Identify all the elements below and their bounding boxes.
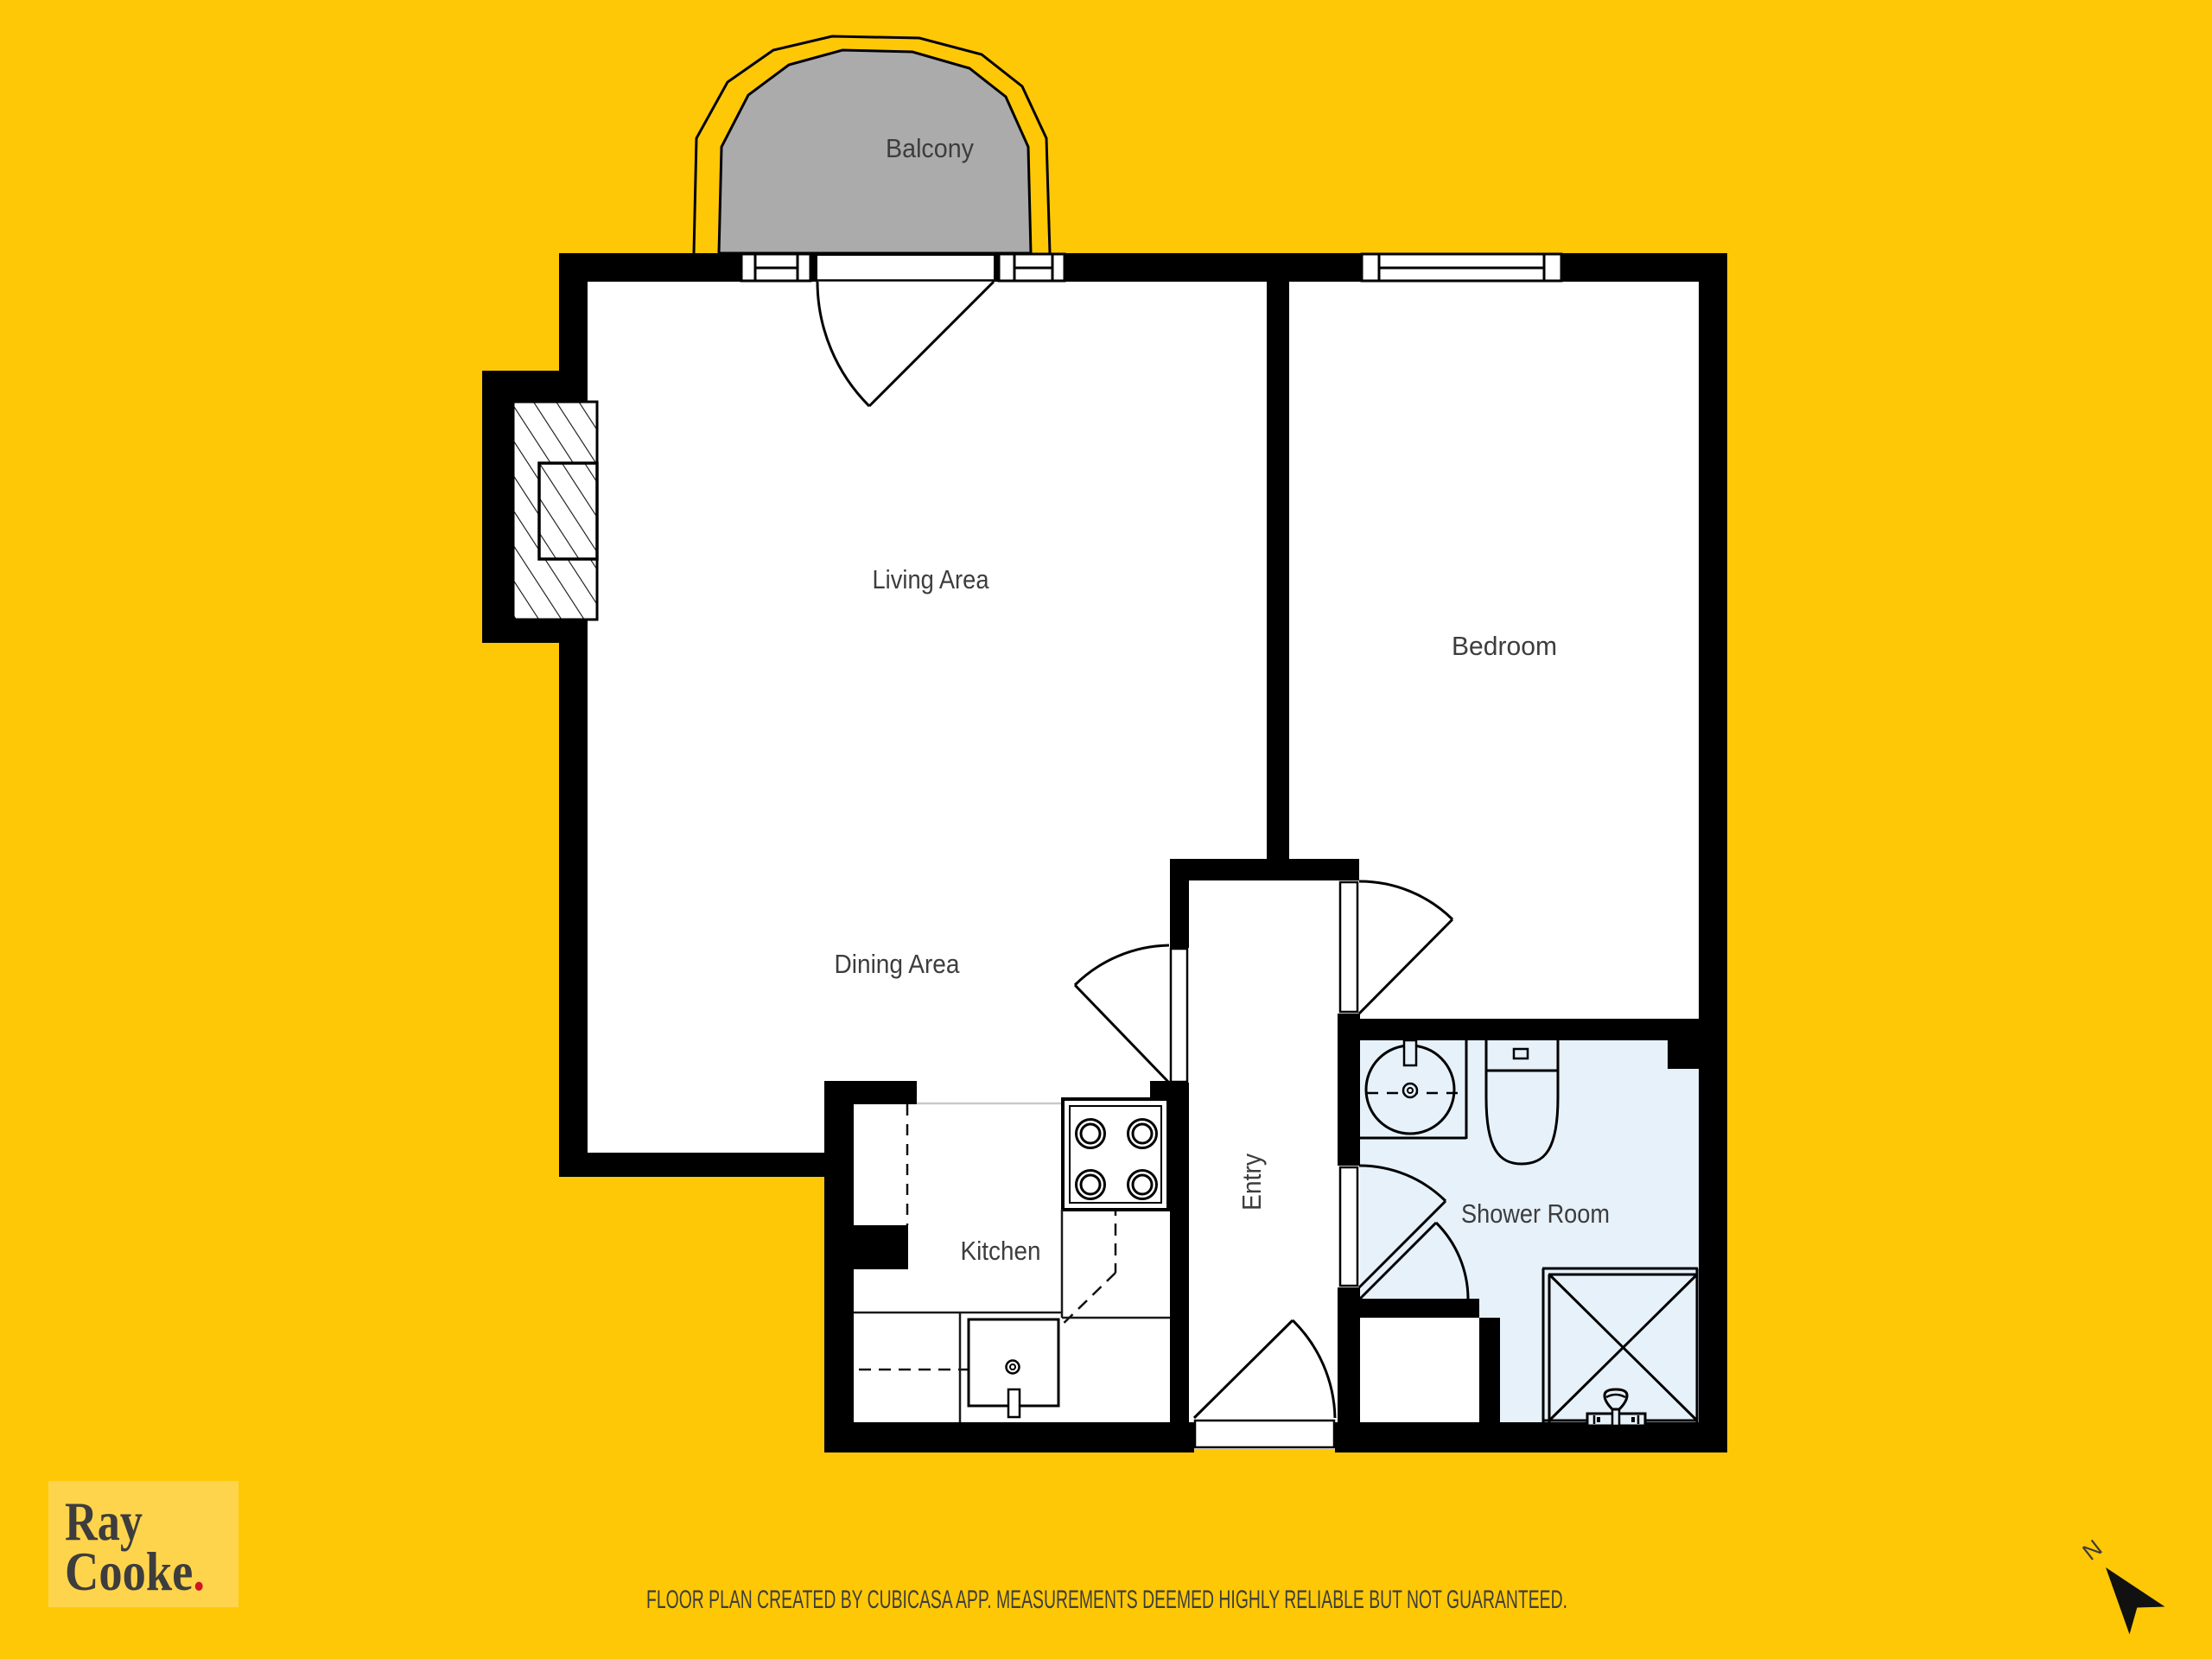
svg-text:FLOOR PLAN CREATED BY CUBICASA: FLOOR PLAN CREATED BY CUBICASA APP. MEAS… [646,1586,1567,1614]
svg-text:Entry: Entry [1236,1154,1267,1211]
svg-text:Balcony: Balcony [886,133,974,163]
svg-text:Cooke.: Cooke. [65,1541,205,1602]
svg-text:Dining Area: Dining Area [835,949,961,979]
svg-text:Living Area: Living Area [873,564,990,594]
svg-text:Bedroom: Bedroom [1452,631,1557,661]
svg-text:Shower Room: Shower Room [1461,1198,1610,1229]
svg-text:Kitchen: Kitchen [961,1236,1041,1266]
svg-text:N: N [2078,1535,2107,1566]
